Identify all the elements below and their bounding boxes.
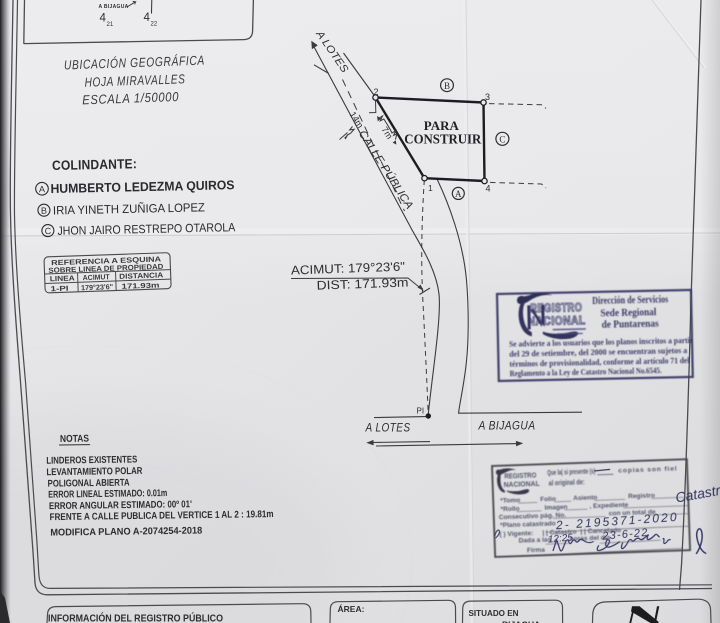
svg-text:Dada a las: Dada a las [519,536,552,544]
svg-text:2: 2 [374,87,379,97]
svg-text:BIJAGUA: BIJAGUA [502,620,540,623]
svg-text:4: 4 [144,12,151,24]
svg-text:171.93m: 171.93m [121,280,160,290]
svg-text:C: C [45,226,52,236]
svg-text:Registro: Registro [628,492,655,500]
svg-text:, Expediente: , Expediente [589,502,628,510]
svg-text:INFORMACIÓN DEL REGISTRO PÚBLI: INFORMACIÓN DEL REGISTRO PÚBLICO [48,612,223,623]
svg-text:MODIFICA PLANO A-2074254-2018: MODIFICA PLANO A-2074254-2018 [50,526,203,539]
svg-text:Imagen: Imagen [544,504,567,512]
svg-text:al original de:: al original de: [548,477,584,487]
svg-text:A BIJAGUA: A BIJAGUA [478,421,536,433]
svg-text:4: 4 [100,13,107,25]
svg-text:ERROR LINEAL ESTIMADO: 0.01m: ERROR LINEAL ESTIMADO: 0.01m [48,488,167,501]
svg-text:LINEA: LINEA [50,273,76,283]
svg-text:ÁREA:: ÁREA: [338,604,365,614]
svg-text:PI: PI [417,407,425,416]
svg-text:C: C [499,134,505,144]
svg-text:DISTANCIA: DISTANCIA [119,270,164,281]
svg-text:PARA: PARA [424,119,459,133]
svg-text:de Puntarenas: de Puntarenas [602,319,659,331]
svg-text:*Rollo: *Rollo [500,506,519,514]
svg-text:1: 1 [428,183,433,193]
svg-text:21: 21 [107,22,114,28]
svg-text:Folio: Folio [540,496,556,504]
svg-text:LINDEROS EXISTENTES: LINDEROS EXISTENTES [46,454,138,466]
svg-text:CONSTRUIR: CONSTRUIR [404,133,482,148]
svg-text:Sede Regional: Sede Regional [600,307,656,319]
svg-text:SITUADO EN: SITUADO EN [469,608,519,618]
svg-text:B: B [444,81,450,91]
svg-text:A: A [455,189,462,199]
svg-text:Firma: Firma [527,547,546,555]
svg-text:A: A [39,184,45,194]
svg-text:Asiento: Asiento [573,494,597,502]
svg-text:1-PI: 1-PI [50,284,68,294]
svg-text:4: 4 [486,184,491,194]
svg-text:COLINDANTE:: COLINDANTE: [52,156,137,173]
svg-text:NACIONAL: NACIONAL [503,479,540,489]
svg-text:179°23'6": 179°23'6" [81,282,113,292]
svg-text:Que la( si presente (s): Que la( si presente (s) [547,466,596,477]
svg-text:Dirección de Servicios: Dirección de Servicios [592,294,668,307]
svg-text:22: 22 [151,22,158,28]
svg-text:LEVANTAMIENTO POLAR: LEVANTAMIENTO POLAR [46,466,142,478]
svg-text:*Tomo: *Tomo [500,497,520,505]
svg-text:3: 3 [485,92,490,102]
svg-text:NOTAS: NOTAS [60,434,89,445]
svg-text:A BIJAGUA: A BIJAGUA [99,4,129,10]
svg-text:B: B [41,206,47,216]
svg-text:A LOTES: A LOTES [365,423,411,435]
svg-text:ACIMUT: ACIMUT [83,272,111,282]
